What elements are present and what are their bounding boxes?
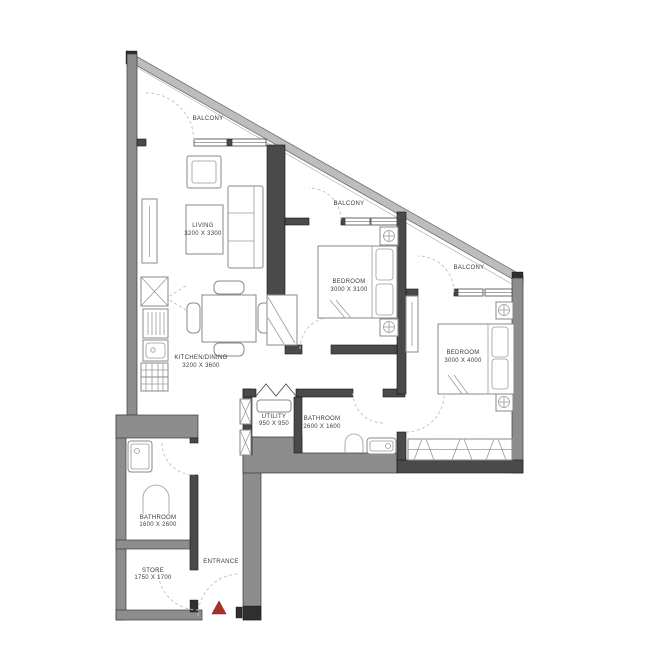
hob <box>143 309 168 338</box>
toilet-1 <box>345 434 363 453</box>
bedroom2-dims: 3000 X 4000 <box>444 358 482 364</box>
shaft-box-b <box>240 430 251 455</box>
tv-unit <box>142 199 157 263</box>
living-bedroom1-wall <box>267 145 285 295</box>
armchair <box>187 156 221 188</box>
utility-appliance <box>257 400 291 412</box>
bedroom2-door-swing <box>406 394 444 432</box>
cabinet-2 <box>406 296 418 352</box>
hall-wall-b <box>296 389 353 397</box>
balcony1-door-swing <box>146 93 194 140</box>
nightstand-1a <box>380 227 398 245</box>
living-winwall-a <box>137 139 146 146</box>
left-wall <box>127 54 137 415</box>
store-bottom-wall <box>116 610 202 620</box>
store-dims: 1750 X 1700 <box>134 575 172 581</box>
lower-left-wall <box>116 415 126 620</box>
bathroom2-label: BATHROOM <box>140 515 177 521</box>
bed2-winwall-mullion <box>454 289 458 296</box>
bedroom2-window <box>458 289 512 296</box>
nightstand-1b <box>380 319 398 336</box>
hall-wall-a <box>243 389 256 397</box>
washer <box>141 363 168 391</box>
entrance-jamb-right <box>236 607 242 618</box>
store-label: STORE <box>142 568 164 574</box>
bedroom1-door-swing <box>300 317 332 349</box>
bedroom1-bottom-wall-a <box>285 345 302 354</box>
bathroom2-fixtures <box>128 441 169 514</box>
balcony-right-label: BALCONY <box>454 265 485 271</box>
kitchen-unit <box>141 277 168 306</box>
bed2-winwall-a <box>406 289 418 296</box>
kitchen-sink <box>143 340 168 361</box>
nightstand-2a <box>496 302 513 319</box>
bathroom1-fixtures <box>345 434 396 454</box>
dining-furniture <box>166 281 271 356</box>
shaft-box-a <box>240 399 251 424</box>
sofa <box>228 186 263 268</box>
kitchen-dims: 3200 X 3600 <box>182 363 220 369</box>
bedroom1-dims: 3000 X 3100 <box>330 287 368 293</box>
appliance-swing <box>166 286 186 310</box>
entrance-wall-cap <box>243 606 261 620</box>
dining-chair-left <box>187 303 200 333</box>
bedroom2-bottom-wall <box>397 460 523 473</box>
dining-chair-top <box>214 281 244 294</box>
corridor-wall-b <box>190 475 198 570</box>
wardrobe-2 <box>408 439 512 460</box>
entrance-label: ENTRANCE <box>203 559 238 565</box>
corridor-wall-a <box>190 438 198 443</box>
bed1-winwall-a <box>285 218 309 225</box>
kitchen-label: KITCHEN/DINING <box>174 355 227 361</box>
floor-plan-page: BALCONY LIVING 3200 X 3300 BALCONY BEDRO… <box>0 0 660 664</box>
balcony-mid-label: BALCONY <box>334 201 365 207</box>
bedroom2-west-wall-b <box>397 432 406 462</box>
store-bathroom-divider <box>116 540 192 549</box>
utility-dims: 950 X 950 <box>259 421 289 427</box>
living-dims: 3200 X 3300 <box>184 231 222 237</box>
utility-bifold-door <box>256 384 296 396</box>
bedroom1-bottom-wall-b <box>331 345 397 354</box>
bed1-winwall-mullion <box>341 218 345 225</box>
wardrobe-1 <box>267 295 297 345</box>
kitchen-counter <box>141 277 168 391</box>
nightstand-2b <box>496 394 513 411</box>
living-label: LIVING <box>192 223 214 229</box>
floor-plan: BALCONY LIVING 3200 X 3300 BALCONY BEDRO… <box>0 0 660 664</box>
bedroom1-furniture <box>267 227 398 345</box>
bedroom2-label: BEDROOM <box>446 350 479 356</box>
bathroom2-door-swing <box>162 443 194 475</box>
entrance-marker-icon <box>212 601 226 614</box>
toilet-2 <box>143 485 169 514</box>
dining-table <box>202 295 256 342</box>
bathroom1-label: BATHROOM <box>304 416 341 422</box>
bedroom1-window <box>345 218 397 225</box>
living-furniture <box>142 156 263 268</box>
bathroom2-dims: 1600 X 2600 <box>139 522 177 528</box>
vanity-2 <box>128 441 152 472</box>
coffee-table <box>186 205 223 254</box>
utility-bath-divider <box>294 397 302 453</box>
bedroom2-furniture <box>406 296 514 460</box>
vanity-1 <box>367 438 396 454</box>
kitchen-bottom-wall <box>116 415 198 438</box>
balcony-top-label: BALCONY <box>193 116 224 122</box>
living-winwall-mullion <box>227 139 232 146</box>
bathroom1-dims: 2600 X 1600 <box>303 424 341 430</box>
bathroom1-door-swing <box>353 393 383 423</box>
utility-label: UTILITY <box>262 414 286 420</box>
bedroom1-label: BEDROOM <box>332 279 365 285</box>
balcony3-door-swing <box>418 256 454 292</box>
